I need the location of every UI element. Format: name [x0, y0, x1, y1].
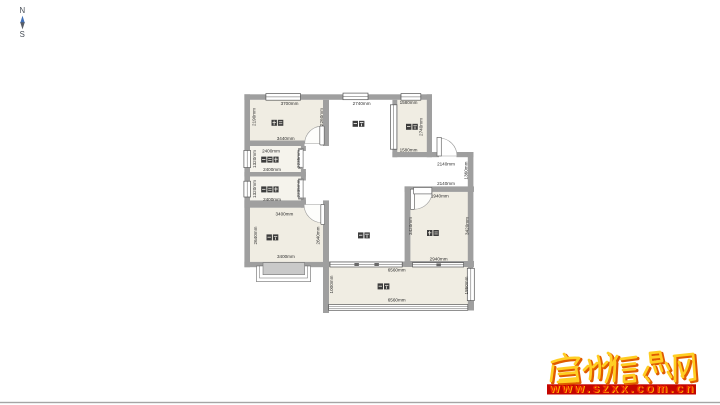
svg-text:2260mm: 2260mm	[319, 108, 324, 126]
svg-text:1580mm: 1580mm	[400, 147, 418, 152]
svg-text:3700mm: 3700mm	[281, 101, 299, 106]
svg-text:6560mm: 6560mm	[388, 268, 406, 273]
svg-text:2940mm: 2940mm	[430, 256, 448, 261]
svg-text:2140mm: 2140mm	[437, 181, 455, 186]
svg-text:2400mm: 2400mm	[262, 148, 280, 153]
svg-text:1860mm: 1860mm	[464, 276, 469, 294]
svg-text:2400mm: 2400mm	[263, 197, 281, 202]
svg-text:2235mm: 2235mm	[296, 150, 301, 168]
svg-text:1320mm: 1320mm	[252, 180, 257, 198]
svg-text:3400mm: 3400mm	[277, 254, 295, 259]
svg-text:2740mm: 2740mm	[419, 118, 424, 136]
svg-text:1360mm: 1360mm	[464, 161, 469, 179]
svg-text:2400mm: 2400mm	[263, 167, 281, 172]
svg-text:2190mm: 2190mm	[252, 108, 257, 126]
svg-text:3440mm: 3440mm	[277, 136, 295, 141]
svg-text:2140mm: 2140mm	[437, 161, 455, 166]
svg-text:2235mm: 2235mm	[296, 179, 301, 197]
svg-text:3420mm: 3420mm	[464, 217, 469, 235]
svg-text:1580mm: 1580mm	[400, 100, 418, 105]
svg-text:3420mm: 3420mm	[408, 217, 413, 235]
svg-text:2640mm: 2640mm	[253, 226, 258, 244]
svg-text:1000mm: 1000mm	[329, 275, 334, 293]
svg-text:N: N	[19, 6, 25, 15]
svg-text:6560mm: 6560mm	[388, 297, 406, 302]
svg-text:2640mm: 2640mm	[316, 226, 321, 244]
svg-text:1320mm: 1320mm	[252, 150, 257, 168]
svg-text:3400mm: 3400mm	[275, 211, 293, 216]
svg-text:S: S	[20, 30, 25, 39]
svg-text:1940mm: 1940mm	[431, 194, 449, 199]
svg-text:2740mm: 2740mm	[353, 101, 371, 106]
